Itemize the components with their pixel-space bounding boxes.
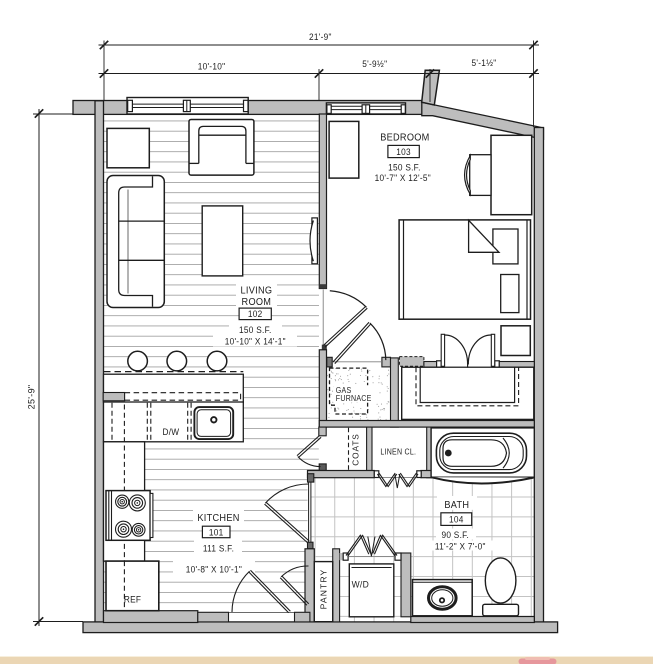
svg-text:10'-8" X 10'-1": 10'-8" X 10'-1" bbox=[186, 564, 242, 574]
svg-text:111 S.F.: 111 S.F. bbox=[203, 543, 234, 553]
svg-text:D/W: D/W bbox=[162, 427, 179, 437]
svg-text:W/D: W/D bbox=[352, 579, 369, 589]
svg-text:10'-7" X 12'-5": 10'-7" X 12'-5" bbox=[375, 172, 431, 182]
svg-text:5'-9½": 5'-9½" bbox=[362, 59, 387, 69]
svg-text:90 S.F.: 90 S.F. bbox=[441, 530, 469, 540]
svg-text:102: 102 bbox=[248, 309, 263, 319]
svg-text:150 S.F.: 150 S.F. bbox=[388, 162, 421, 172]
svg-text:104: 104 bbox=[449, 514, 464, 524]
svg-text:REF: REF bbox=[124, 594, 141, 604]
svg-text:KITCHEN: KITCHEN bbox=[197, 513, 239, 524]
svg-text:FURNACE: FURNACE bbox=[336, 394, 372, 404]
svg-text:21'-9": 21'-9" bbox=[309, 32, 332, 42]
svg-text:COATS: COATS bbox=[351, 433, 361, 465]
svg-text:101: 101 bbox=[209, 527, 224, 537]
svg-text:25'-9": 25'-9" bbox=[27, 385, 37, 410]
svg-text:ROOM: ROOM bbox=[242, 297, 272, 308]
svg-text:10'-10" X 14'-1": 10'-10" X 14'-1" bbox=[225, 336, 286, 346]
svg-text:103: 103 bbox=[396, 146, 411, 156]
svg-text:BEDROOM: BEDROOM bbox=[380, 132, 429, 143]
svg-text:150 S.F.: 150 S.F. bbox=[239, 324, 272, 334]
svg-text:11'-2" X 7'-0": 11'-2" X 7'-0" bbox=[435, 541, 486, 551]
svg-text:PANTRY: PANTRY bbox=[319, 569, 329, 610]
svg-text:5'-1½": 5'-1½" bbox=[472, 58, 497, 68]
svg-text:LIVING: LIVING bbox=[241, 285, 273, 296]
svg-text:BATH: BATH bbox=[444, 500, 469, 511]
svg-text:10'-10": 10'-10" bbox=[198, 61, 226, 71]
svg-text:LINEN CL.: LINEN CL. bbox=[380, 447, 416, 457]
